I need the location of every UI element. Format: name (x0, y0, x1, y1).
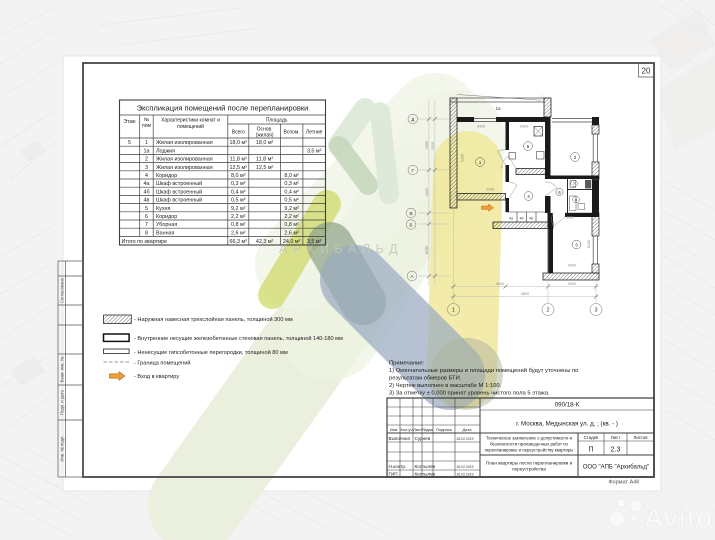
svg-text:1) Окончательные размеры и пло: 1) Окончательные размеры и площади помещ… (389, 367, 578, 374)
svg-text:(жилая): (жилая) (256, 133, 274, 139)
svg-text:Лист: Лист (413, 427, 422, 432)
svg-text:0,5 м²: 0,5 м² (231, 198, 246, 204)
svg-text:2: 2 (574, 155, 577, 160)
svg-text:Выполнил: Выполнил (389, 436, 411, 441)
svg-text:Б: Б (409, 222, 412, 227)
svg-text:Вспом.: Вспом. (284, 130, 300, 136)
svg-text:Шкаф встроенный: Шкаф встроенный (156, 197, 202, 204)
svg-text:3: 3 (145, 165, 148, 171)
svg-text:26.02.2019: 26.02.2019 (457, 437, 474, 441)
svg-text:Изм: Изм (390, 427, 398, 432)
svg-text:переустройства: переустройства (512, 466, 546, 472)
svg-text:1: 1 (452, 308, 455, 314)
svg-text:Уборная: Уборная (156, 222, 177, 228)
svg-text:26.02.2019: 26.02.2019 (457, 465, 474, 469)
svg-text:Шкаф встроенный: Шкаф встроенный (156, 188, 202, 195)
svg-text:12,5 м²: 12,5 м² (256, 165, 274, 171)
svg-text:4б: 4б (519, 217, 523, 221)
svg-text:Согласовано: Согласовано (59, 277, 64, 303)
svg-text:12,5 м²: 12,5 м² (230, 165, 248, 171)
svg-text:Листов: Листов (634, 435, 649, 440)
svg-text:Жилая изолированная: Жилая изолированная (156, 157, 213, 163)
svg-text:8,0 м²: 8,0 м² (284, 173, 299, 179)
svg-text:Жилая изолированная: Жилая изолированная (156, 140, 213, 146)
svg-text:пом: пом (142, 123, 151, 129)
svg-text:11,8 м²: 11,8 м² (230, 157, 247, 163)
svg-text:2: 2 (145, 157, 148, 163)
svg-text:Экспликация помещений после пе: Экспликация помещений после перепланиров… (137, 104, 309, 113)
svg-text:1020: 1020 (431, 142, 435, 150)
svg-text:2.3: 2.3 (611, 447, 621, 454)
svg-text:Сурнев: Сурнев (415, 436, 431, 441)
svg-text:Шкаф встроенный: Шкаф встроенный (156, 180, 202, 187)
svg-text:помещений: помещений (177, 123, 204, 130)
svg-text:3: 3 (595, 308, 598, 314)
svg-text:Летние: Летние (306, 130, 323, 136)
svg-text:перепланировке и переустройств: перепланировке и переустройству квартиры (485, 448, 574, 453)
svg-text:1а: 1а (495, 106, 501, 111)
svg-text:Коридор: Коридор (156, 214, 177, 220)
svg-text:5: 5 (128, 140, 131, 146)
svg-text:безопасности произведенных раб: безопасности произведенных работ по (490, 442, 568, 447)
svg-text:В: В (409, 211, 412, 216)
svg-text:18,0 м²: 18,0 м² (230, 140, 248, 146)
svg-text:Примечание:: Примечание: (389, 361, 425, 367)
svg-text:Лоджия: Лоджия (156, 148, 175, 154)
svg-text:4630: 4630 (496, 282, 504, 286)
svg-text:- Вход в квартиру: - Вход в квартиру (134, 374, 179, 380)
svg-text:Н.контр.: Н.контр. (389, 464, 407, 469)
svg-text:4а: 4а (144, 181, 150, 187)
svg-text:9,2 м²: 9,2 м² (284, 206, 299, 212)
svg-text:2550: 2550 (425, 141, 429, 149)
svg-text:2400: 2400 (520, 125, 528, 129)
svg-text:6: 6 (145, 214, 148, 220)
svg-text:5: 5 (527, 144, 530, 149)
svg-text:- Наружная навесная трехслойна: - Наружная навесная трехслойная панель, … (134, 316, 293, 323)
svg-text:Инв. № подл.: Инв. № подл. (59, 435, 64, 461)
svg-text:Подпись: Подпись (436, 427, 452, 432)
svg-text:8,0 м²: 8,0 м² (231, 173, 246, 179)
svg-text:9,2 м²: 9,2 м² (231, 206, 246, 212)
svg-text:20: 20 (642, 67, 651, 76)
svg-text:4б: 4б (143, 189, 149, 195)
svg-text:2: 2 (547, 308, 550, 314)
svg-text:г. Москва, Медынская ул. д.: г. Москва, Медынская ул. д. ; (кв. - ) (516, 421, 618, 428)
svg-text:26.02.2019: 26.02.2019 (457, 473, 474, 477)
svg-text:ГИП: ГИП (389, 472, 398, 477)
svg-text:3) За отметку ± 0,000 принят у: 3) За отметку ± 0,000 принят уровень чис… (389, 391, 550, 397)
svg-text:4а: 4а (509, 217, 513, 221)
svg-text:5300: 5300 (461, 154, 465, 162)
svg-text:Стадия: Стадия (584, 435, 599, 440)
svg-text:- Ненесущие гипсобетонные пер: - Ненесущие гипсобетонные перегородки, т… (134, 349, 288, 356)
svg-text:18,0 м²: 18,0 м² (256, 140, 274, 146)
svg-text:План квартиры после перепланир: План квартиры после перепланировки и (486, 461, 573, 466)
svg-text:Площадь: Площадь (266, 118, 288, 124)
svg-text:0,4 м²: 0,4 м² (284, 189, 299, 195)
svg-text:0,3 м²: 0,3 м² (284, 181, 299, 187)
svg-text:6: 6 (558, 190, 561, 195)
svg-text:0,3 м²: 0,3 м² (231, 181, 246, 187)
svg-text:0,5 м²: 0,5 м² (284, 198, 299, 204)
svg-text:- Граница помещений: - Граница помещений (134, 359, 191, 366)
svg-text:2) Чертеж выполнен в масштабе: 2) Чертеж выполнен в масштабе М 1:100. (389, 383, 502, 389)
svg-text:3430: 3430 (486, 188, 494, 192)
svg-text:2,2 м²: 2,2 м² (231, 214, 246, 220)
svg-text:8: 8 (145, 230, 148, 236)
svg-text:3: 3 (575, 242, 578, 247)
svg-text:- Внутренние несущие железобет: - Внутренние несущие железобетонные стен… (134, 335, 343, 342)
svg-text:1а: 1а (144, 148, 150, 154)
svg-text:66,3 м²: 66,3 м² (230, 239, 248, 245)
svg-text:5: 5 (145, 206, 148, 212)
svg-text:42,3 м²: 42,3 м² (256, 239, 274, 245)
svg-text:0,4 м²: 0,4 м² (231, 189, 246, 195)
svg-text:Формат А4К: Формат А4К (609, 480, 641, 486)
svg-text:Костылев: Костылев (415, 472, 436, 477)
svg-text:3,5 м²: 3,5 м² (307, 239, 322, 245)
svg-text:3000: 3000 (566, 216, 574, 220)
svg-text:Дата: Дата (463, 427, 473, 432)
svg-text:ООО "АПБ "Архибальд": ООО "АПБ "Архибальд" (583, 465, 649, 471)
svg-text:№док: №док (422, 427, 433, 432)
svg-text:24,0 м²: 24,0 м² (283, 239, 301, 245)
svg-text:0,8 м²: 0,8 м² (231, 222, 246, 228)
svg-text:Костылев: Костылев (415, 464, 436, 469)
svg-text:4в: 4в (144, 198, 150, 204)
svg-text:1: 1 (479, 160, 482, 165)
svg-text:2,2 м²: 2,2 м² (284, 214, 299, 220)
svg-text:Кол.уч: Кол.уч (401, 427, 413, 432)
svg-text:Лист: Лист (611, 435, 620, 440)
svg-text:Взам. инв. №: Взам. инв. № (59, 356, 64, 382)
svg-text:Всего: Всего (232, 130, 245, 136)
svg-text:Техническое заключение о допус: Техническое заключение о допустимости и (486, 436, 573, 441)
svg-text:1: 1 (145, 140, 148, 146)
svg-text:результатам обмеров БТИ.: результатам обмеров БТИ. (389, 376, 462, 382)
svg-text:4: 4 (145, 173, 148, 179)
svg-text:6100: 6100 (587, 240, 591, 248)
svg-text:Жилая изолированная: Жилая изолированная (156, 165, 213, 171)
svg-text:7: 7 (145, 222, 148, 228)
svg-text:9800: 9800 (521, 292, 529, 296)
svg-text:Подп. и дата: Подп. и дата (59, 389, 64, 414)
svg-text:Характеристики комнат и: Характеристики комнат и (161, 118, 220, 124)
svg-text:11,8 м²: 11,8 м² (256, 157, 273, 163)
svg-text:090/18-К: 090/18-К (555, 402, 580, 409)
svg-text:Этаж: Этаж (124, 119, 137, 125)
svg-text:4300: 4300 (425, 188, 429, 196)
svg-text:Кухня: Кухня (156, 206, 171, 212)
svg-text:3000: 3000 (568, 282, 576, 286)
svg-text:3,5 м²: 3,5 м² (307, 148, 322, 154)
svg-text:3000: 3000 (568, 264, 576, 268)
svg-text:0,8 м²: 0,8 м² (284, 222, 299, 228)
svg-text:3400: 3400 (477, 125, 485, 129)
svg-text:6250: 6250 (425, 246, 429, 254)
svg-text:Коридор: Коридор (156, 173, 177, 179)
svg-text:4в: 4в (529, 217, 533, 221)
svg-text:4: 4 (527, 194, 530, 199)
svg-text:2,6 м²: 2,6 м² (231, 230, 246, 236)
svg-text:Ванная: Ванная (156, 230, 175, 236)
svg-text:Avito: Avito (644, 503, 713, 533)
svg-text:Итого по квартире: Итого по квартире (122, 239, 168, 245)
svg-text:П: П (588, 447, 593, 454)
svg-text:2,6 м²: 2,6 м² (284, 230, 299, 236)
